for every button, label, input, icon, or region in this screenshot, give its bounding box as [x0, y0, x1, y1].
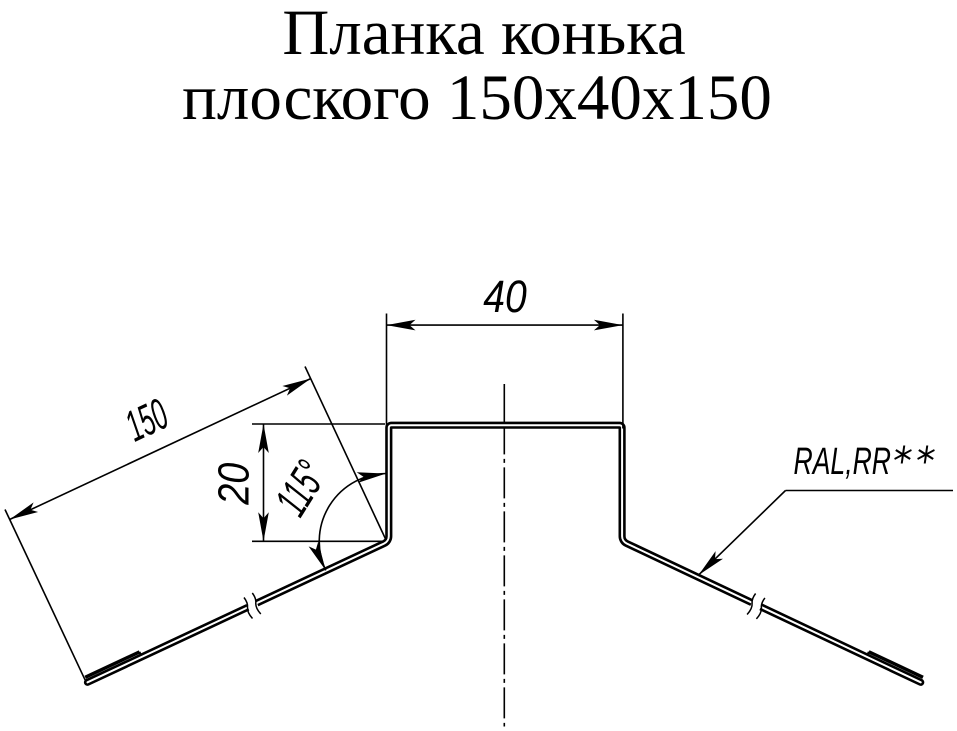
svg-text:20: 20 — [209, 462, 258, 505]
svg-text:плоского 150х40х150: плоского 150х40х150 — [182, 62, 772, 134]
svg-text:150: 150 — [118, 389, 176, 451]
svg-text:Планка конька: Планка конька — [282, 0, 685, 69]
svg-text:RAL,RR: RAL,RR — [794, 439, 892, 482]
svg-text:40: 40 — [483, 271, 527, 321]
